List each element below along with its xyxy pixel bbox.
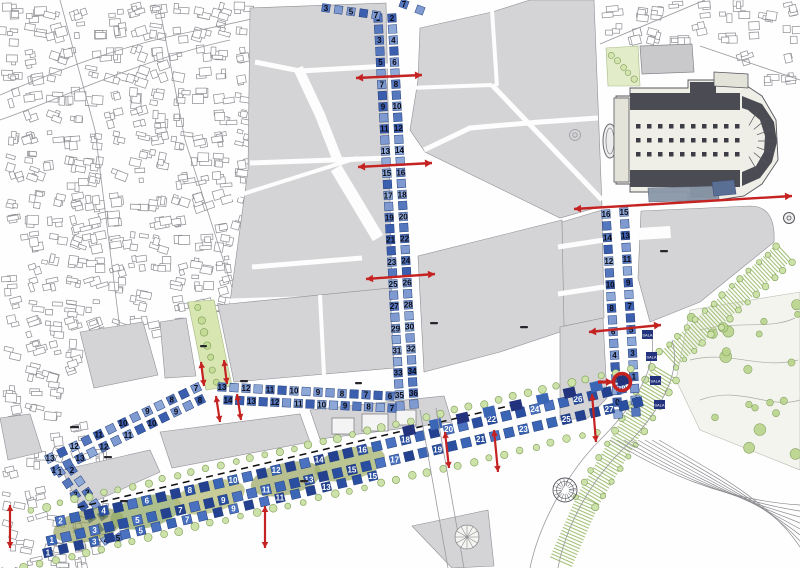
svg-text:13: 13 [46, 454, 55, 463]
svg-text:27: 27 [605, 405, 614, 414]
svg-text:9: 9 [231, 505, 236, 514]
svg-text:3: 3 [92, 537, 97, 546]
svg-text:7: 7 [185, 516, 190, 525]
svg-text:9: 9 [221, 496, 226, 505]
svg-text:3: 3 [92, 526, 97, 535]
svg-text:19: 19 [433, 445, 442, 454]
svg-text:SALA: SALA [654, 403, 665, 408]
svg-text:7: 7 [364, 391, 369, 400]
svg-text:26: 26 [403, 279, 412, 288]
svg-text:34: 34 [408, 367, 417, 376]
svg-text:24: 24 [401, 257, 410, 266]
svg-text:21: 21 [386, 236, 395, 245]
svg-text:28: 28 [404, 301, 413, 310]
svg-text:6: 6 [392, 58, 397, 67]
svg-text:14: 14 [315, 456, 324, 465]
svg-text:7: 7 [178, 506, 183, 515]
svg-text:5: 5 [349, 7, 354, 16]
svg-text:32: 32 [406, 345, 415, 354]
svg-text:7: 7 [380, 80, 385, 89]
svg-text:23: 23 [387, 258, 396, 267]
svg-text:27: 27 [390, 302, 399, 311]
svg-text:1: 1 [49, 536, 54, 545]
svg-text:8: 8 [366, 403, 371, 412]
svg-text:10: 10 [317, 401, 326, 410]
svg-text:9: 9 [381, 103, 386, 112]
svg-text:9: 9 [174, 408, 179, 417]
svg-text:9: 9 [343, 402, 348, 411]
svg-text:31: 31 [392, 347, 401, 356]
svg-text:8: 8 [188, 486, 193, 495]
svg-text:5: 5 [135, 516, 140, 525]
svg-text:8: 8 [198, 396, 203, 405]
svg-text:29: 29 [391, 324, 400, 333]
svg-text:14: 14 [395, 146, 404, 155]
svg-text:5: 5 [378, 58, 383, 67]
svg-text:16: 16 [396, 168, 405, 177]
svg-text:11: 11 [380, 125, 389, 134]
svg-text:11: 11 [294, 399, 303, 408]
svg-text:SALA: SALA [646, 355, 657, 360]
svg-text:3: 3 [630, 349, 635, 358]
svg-text:7: 7 [374, 11, 379, 20]
svg-text:10: 10 [290, 387, 299, 396]
svg-text:20: 20 [399, 212, 408, 221]
svg-text:12: 12 [272, 466, 281, 475]
svg-text:25: 25 [389, 280, 398, 289]
svg-text:13: 13 [247, 397, 256, 406]
svg-text:1: 1 [46, 548, 51, 557]
svg-text:7: 7 [194, 384, 199, 393]
svg-text:8: 8 [340, 389, 345, 398]
svg-text:7: 7 [627, 302, 632, 311]
svg-text:3: 3 [377, 36, 382, 45]
svg-text:10: 10 [119, 419, 128, 428]
svg-text:11: 11 [94, 431, 103, 440]
svg-text:4: 4 [101, 507, 106, 516]
svg-text:12: 12 [100, 443, 109, 452]
svg-text:15: 15 [620, 208, 629, 217]
svg-text:3: 3 [324, 4, 329, 13]
svg-text:SALA: SALA [642, 333, 653, 338]
svg-text:12: 12 [70, 442, 79, 451]
svg-text:19: 19 [385, 213, 394, 222]
svg-text:12: 12 [604, 257, 613, 266]
svg-text:36: 36 [409, 389, 418, 398]
svg-text:1: 1 [58, 468, 63, 477]
svg-text:13: 13 [621, 231, 630, 240]
svg-text:9: 9 [626, 279, 631, 288]
svg-text:11: 11 [266, 386, 275, 395]
svg-text:35: 35 [395, 391, 404, 400]
svg-text:7: 7 [390, 404, 395, 413]
svg-text:13: 13 [322, 483, 331, 492]
svg-text:13: 13 [76, 454, 85, 463]
svg-text:12: 12 [394, 124, 403, 133]
svg-text:17: 17 [390, 455, 399, 464]
svg-text:24: 24 [530, 405, 539, 414]
svg-text:15: 15 [368, 472, 377, 481]
svg-text:9: 9 [316, 388, 321, 397]
svg-text:13: 13 [381, 147, 390, 156]
svg-text:2: 2 [58, 517, 63, 526]
svg-text:16: 16 [602, 210, 611, 219]
svg-text:25: 25 [562, 415, 571, 424]
svg-text:11: 11 [262, 486, 271, 495]
svg-text:4: 4 [612, 351, 617, 360]
svg-text:13: 13 [218, 383, 227, 392]
svg-text:17: 17 [384, 191, 393, 200]
svg-text:15: 15 [347, 466, 356, 475]
svg-text:15: 15 [382, 169, 391, 178]
svg-text:10: 10 [606, 281, 615, 290]
svg-text:18: 18 [398, 190, 407, 199]
svg-text:16: 16 [358, 446, 367, 455]
svg-text:1: 1 [632, 373, 637, 382]
svg-text:10: 10 [229, 476, 238, 485]
svg-text:2: 2 [70, 466, 75, 475]
svg-text:11: 11 [276, 494, 285, 503]
svg-text:9: 9 [145, 407, 150, 416]
svg-text:6: 6 [388, 392, 393, 401]
svg-text:12: 12 [242, 384, 251, 393]
svg-text:11: 11 [623, 255, 632, 264]
svg-text:7: 7 [402, 0, 407, 9]
svg-text:SALA: SALA [650, 379, 661, 384]
svg-text:8: 8 [169, 396, 174, 405]
svg-text:4: 4 [391, 36, 396, 45]
svg-text:8: 8 [609, 304, 614, 313]
svg-text:5: 5 [138, 527, 143, 536]
svg-text:33: 33 [394, 369, 403, 378]
svg-text:11: 11 [124, 431, 133, 440]
svg-text:14: 14 [603, 233, 612, 242]
svg-text:10: 10 [148, 419, 157, 428]
svg-text:30: 30 [405, 323, 414, 332]
svg-text:21: 21 [476, 435, 485, 444]
svg-text:12: 12 [270, 398, 279, 407]
svg-text:23: 23 [519, 425, 528, 434]
svg-text:8: 8 [394, 80, 399, 89]
svg-text:10: 10 [393, 102, 402, 111]
svg-text:6: 6 [145, 496, 150, 505]
svg-text:18: 18 [401, 435, 410, 444]
svg-text:2: 2 [390, 14, 395, 23]
svg-text:22: 22 [400, 235, 409, 244]
svg-text:14: 14 [224, 396, 233, 405]
